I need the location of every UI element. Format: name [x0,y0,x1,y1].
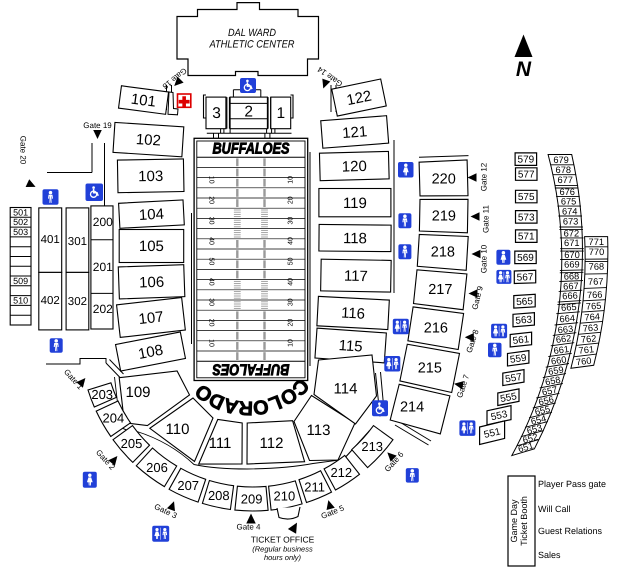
svg-text:20: 20 [288,319,295,327]
svg-text:10: 10 [208,339,215,347]
svg-text:201: 201 [93,260,113,274]
svg-text:216: 216 [424,321,448,337]
svg-text:676: 676 [559,187,575,197]
svg-text:567: 567 [517,272,534,283]
svg-text:119: 119 [343,195,367,212]
svg-text:402: 402 [41,295,60,307]
svg-text:209: 209 [241,492,263,507]
svg-text:672: 672 [564,228,580,238]
svg-text:510: 510 [13,296,28,306]
svg-text:565: 565 [516,296,534,308]
svg-text:N: N [516,58,532,81]
svg-text:10: 10 [288,176,295,184]
svg-text:671: 671 [564,238,580,248]
svg-text:hours only): hours only) [264,553,302,562]
svg-text:Gate 19: Gate 19 [83,121,112,130]
svg-text:BUFFALOES: BUFFALOES [212,361,290,378]
svg-text:569: 569 [517,253,534,264]
svg-text:213: 213 [361,439,383,454]
svg-text:203: 203 [91,387,113,402]
svg-text:501: 501 [13,207,28,217]
svg-text:Sales: Sales [538,550,561,560]
svg-text:212: 212 [330,465,352,480]
svg-text:770: 770 [589,247,605,257]
svg-text:665: 665 [561,302,577,313]
svg-text:761: 761 [578,344,594,356]
svg-text:768: 768 [589,262,605,272]
svg-text:TICKET OFFICE: TICKET OFFICE [251,535,315,545]
svg-text:DAL WARD: DAL WARD [228,27,276,39]
svg-text:678: 678 [556,165,572,175]
svg-text:Player Pass gate: Player Pass gate [538,479,606,489]
svg-text:40: 40 [288,278,295,286]
svg-text:575: 575 [518,192,535,203]
svg-text:20: 20 [208,319,215,327]
svg-text:302: 302 [68,296,87,308]
svg-text:202: 202 [93,302,113,316]
svg-text:573: 573 [518,212,535,223]
svg-text:Ticket Booth: Ticket Booth [519,496,529,546]
svg-text:679: 679 [553,155,569,165]
svg-text:220: 220 [432,171,456,187]
svg-text:117: 117 [344,268,368,285]
svg-text:218: 218 [431,245,455,261]
svg-text:3: 3 [212,105,221,122]
svg-text:101: 101 [130,91,157,111]
svg-text:503: 503 [13,227,28,237]
svg-text:30: 30 [288,217,295,225]
svg-text:577: 577 [518,170,535,181]
svg-text:40: 40 [208,237,215,245]
svg-text:Gate 20: Gate 20 [19,136,28,165]
svg-text:664: 664 [559,313,575,324]
svg-text:561: 561 [512,334,530,347]
svg-text:207: 207 [177,478,199,493]
svg-text:BUFFALOES: BUFFALOES [213,141,291,158]
svg-text:104: 104 [138,206,164,224]
svg-text:666: 666 [562,290,578,301]
svg-text:763: 763 [582,322,598,333]
svg-text:662: 662 [555,333,572,345]
svg-text:40: 40 [288,237,295,245]
svg-text:2: 2 [244,104,253,121]
svg-text:208: 208 [208,488,230,503]
svg-text:114: 114 [334,381,358,398]
svg-text:40: 40 [208,278,215,286]
svg-text:20: 20 [208,196,215,204]
svg-text:674: 674 [562,206,578,216]
svg-text:502: 502 [13,217,28,227]
svg-text:105: 105 [139,238,164,255]
svg-text:205: 205 [121,436,143,451]
svg-text:765: 765 [586,301,602,312]
svg-text:50: 50 [288,257,295,265]
svg-text:579: 579 [518,155,535,166]
svg-text:107: 107 [138,308,165,328]
svg-text:Gate 10: Gate 10 [480,244,489,273]
svg-text:764: 764 [584,312,600,323]
svg-text:116: 116 [341,305,366,323]
svg-text:113: 113 [307,422,331,439]
svg-text:106: 106 [139,274,165,292]
svg-text:118: 118 [343,230,367,247]
svg-text:559: 559 [509,353,527,366]
svg-text:219: 219 [432,208,456,224]
svg-text:766: 766 [587,290,603,301]
svg-text:217: 217 [428,282,452,298]
svg-text:1: 1 [276,105,285,122]
svg-text:50: 50 [208,258,215,266]
svg-text:30: 30 [288,298,295,306]
svg-text:20: 20 [288,196,295,204]
svg-text:30: 30 [208,298,215,306]
svg-text:200: 200 [93,215,113,229]
svg-text:Gate 4: Gate 4 [236,523,261,532]
svg-text:Gate 11: Gate 11 [482,205,491,233]
svg-text:110: 110 [166,421,190,438]
svg-text:210: 210 [274,489,296,504]
svg-text:563: 563 [515,314,533,326]
svg-text:215: 215 [418,361,442,377]
svg-text:Guest Relations: Guest Relations [538,526,603,536]
svg-text:111: 111 [209,435,232,452]
svg-text:509: 509 [13,276,28,286]
svg-text:112: 112 [260,435,284,452]
svg-text:214: 214 [400,399,424,415]
svg-text:120: 120 [342,158,367,176]
svg-text:103: 103 [138,168,163,185]
svg-text:571: 571 [518,232,535,243]
svg-text:Will Call: Will Call [538,504,571,514]
svg-text:206: 206 [146,460,168,475]
svg-text:669: 669 [564,259,580,269]
svg-text:ATHLETIC CENTER: ATHLETIC CENTER [209,38,295,50]
svg-text:677: 677 [557,175,573,185]
svg-text:121: 121 [342,123,368,142]
svg-text:Game Day: Game Day [509,499,519,543]
svg-text:115: 115 [338,337,363,356]
svg-text:771: 771 [589,237,605,247]
svg-text:30: 30 [208,217,215,225]
svg-text:767: 767 [588,276,604,286]
svg-text:211: 211 [304,479,325,494]
svg-text:102: 102 [135,131,161,150]
svg-text:401: 401 [41,234,60,246]
svg-text:Gate 12: Gate 12 [480,162,489,191]
svg-text:760: 760 [575,356,592,368]
svg-text:10: 10 [288,339,295,347]
svg-text:109: 109 [125,384,150,401]
svg-text:762: 762 [580,333,596,344]
svg-text:673: 673 [563,216,579,226]
svg-text:675: 675 [561,197,577,207]
svg-text:301: 301 [68,236,87,248]
svg-text:204: 204 [103,411,125,426]
svg-text:670: 670 [564,250,580,260]
svg-text:10: 10 [208,176,215,184]
